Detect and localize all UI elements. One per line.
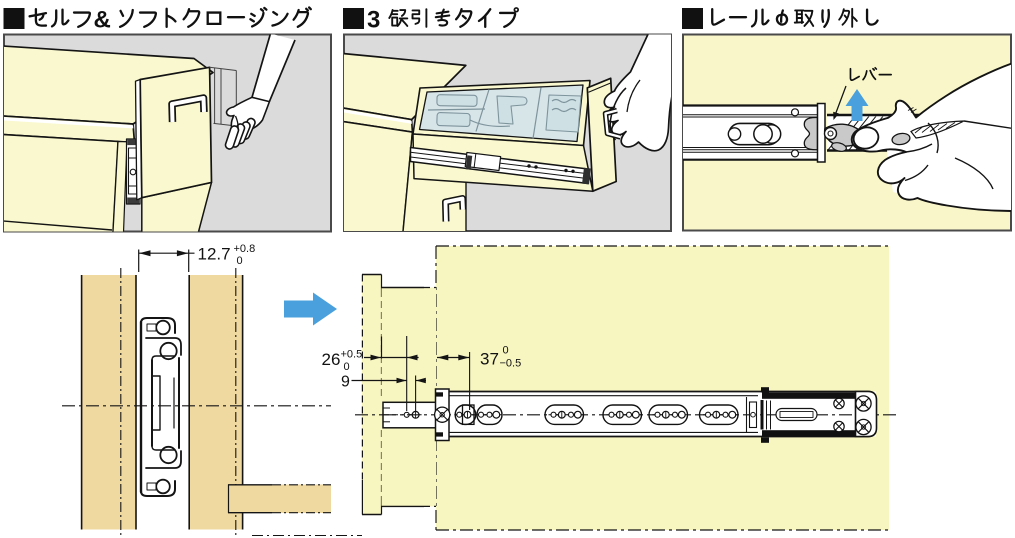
svg-text:9: 9 xyxy=(341,374,350,391)
svg-text:3: 3 xyxy=(367,7,380,34)
svg-text:0: 0 xyxy=(237,255,243,267)
svg-text:+0.8: +0.8 xyxy=(234,243,256,255)
svg-text:37: 37 xyxy=(480,350,499,369)
svg-text:−0.5: −0.5 xyxy=(500,358,522,370)
svg-text:12.7: 12.7 xyxy=(198,245,231,264)
svg-text:+0.5: +0.5 xyxy=(341,349,363,361)
svg-text:&: & xyxy=(94,7,111,34)
svg-text:0: 0 xyxy=(503,345,509,357)
svg-text:26: 26 xyxy=(322,350,341,369)
svg-text:0: 0 xyxy=(344,361,350,373)
